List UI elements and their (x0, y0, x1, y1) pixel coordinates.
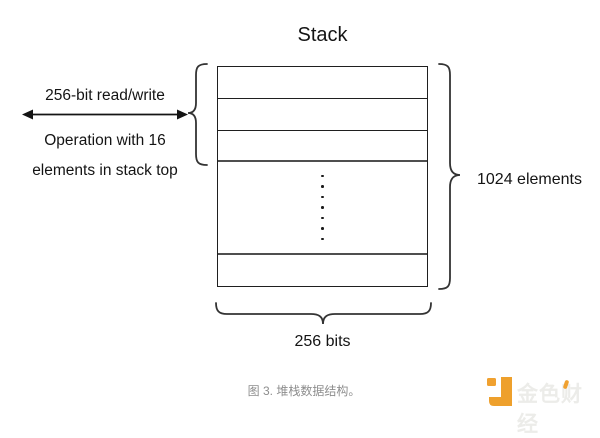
stack-row (218, 99, 427, 131)
brand-name: 金色财经 (517, 378, 600, 438)
right-count-label: 1024 elements (477, 171, 582, 189)
bottom-width-label: 256 bits (217, 333, 428, 351)
dots-column (321, 175, 324, 241)
ellipsis-dot (321, 217, 324, 220)
right-brace-icon (438, 63, 464, 291)
ellipsis-dot (321, 206, 324, 209)
left-annotation-line3: elements in stack top (10, 162, 200, 180)
ellipsis-dot (321, 196, 324, 199)
left-brace-icon (185, 63, 209, 167)
stack-middle-section (218, 162, 427, 256)
double-arrow-icon (22, 107, 188, 122)
stack-box (217, 66, 428, 287)
left-annotation-line2: Operation with 16 (10, 132, 200, 150)
stack-row (218, 67, 427, 99)
stack-row (218, 131, 427, 162)
diagram-title: Stack (217, 24, 428, 47)
ellipsis-dot (321, 238, 324, 241)
ellipsis-dot (321, 227, 324, 230)
brand-logo-icon (487, 377, 514, 408)
ellipsis-dot (321, 175, 324, 178)
ellipsis-dot (321, 185, 324, 188)
stack-row (218, 255, 427, 285)
left-annotation-line1: 256-bit read/write (10, 87, 200, 105)
bottom-brace-icon (215, 302, 432, 328)
